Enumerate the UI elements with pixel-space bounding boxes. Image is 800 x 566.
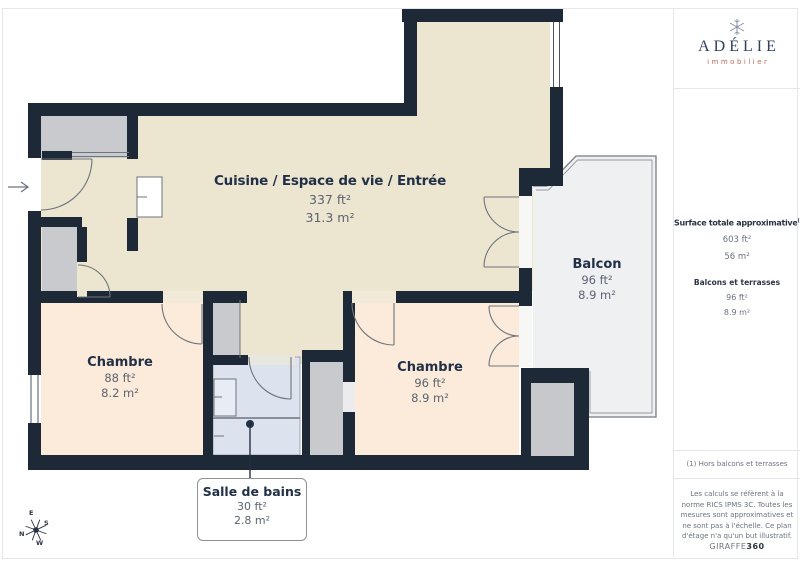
giraffe360-logo: GIRAFFE360 <box>674 542 800 551</box>
agency-subtitle: immobilier <box>674 58 800 66</box>
legal-section: Les calculs se réfèrent à la norme RICS … <box>674 478 800 558</box>
balcony-surface-m2: 8.9 m² <box>674 308 800 317</box>
footnote-section: (1) Hors balcons et terrasses <box>674 450 800 468</box>
room-area-ft: 96 ft² <box>547 273 647 288</box>
room-area-ft: 337 ft² <box>200 191 460 209</box>
disclaimer-text: Les calculs se réfèrent à la norme RICS … <box>680 489 794 542</box>
surface-summary: Surface totale approximative(1) 603 ft² … <box>674 218 800 317</box>
closet-left-mid <box>42 227 77 297</box>
room-area-m2: 8.9 m² <box>370 391 490 406</box>
footnote-text: (1) Hors balcons et terrasses <box>674 460 800 468</box>
room-label-bedroom2: Chambre 96 ft² 8.9 m² <box>370 359 490 406</box>
surface-total-title: Surface totale approximative(1) <box>674 218 800 228</box>
room-area-ft: 30 ft² <box>198 500 306 514</box>
room-area-m2: 31.3 m² <box>200 209 460 227</box>
surface-title-text: Surface totale approximative <box>674 219 797 228</box>
room-name: Balcon <box>547 256 647 273</box>
room-name: Cuisine / Espace de vie / Entrée <box>200 172 460 191</box>
window-bedroom1 <box>28 375 41 423</box>
compass-east-label: E <box>29 509 33 517</box>
room-name: Salle de bains <box>198 484 306 500</box>
entry-arrow-icon <box>8 182 28 192</box>
room-name: Chambre <box>370 359 490 376</box>
compass-south-label: S <box>44 519 49 527</box>
storage-interior <box>531 383 574 456</box>
surface-total-ft: 603 ft² <box>674 235 800 245</box>
room-area-ft: 96 ft² <box>370 376 490 391</box>
balcony-surface-ft: 96 ft² <box>674 293 800 302</box>
room-area-m2: 8.9 m² <box>547 288 647 303</box>
agency-logo: ADÉLIE immobilier <box>674 8 800 89</box>
room-label-balcony: Balcon 96 ft² 8.9 m² <box>547 256 647 303</box>
room-area-m2: 8.2 m² <box>60 386 180 401</box>
main-room-upper-floor <box>415 22 550 116</box>
compass-north-label: N <box>19 530 24 538</box>
room-label-main: Cuisine / Espace de vie / Entrée 337 ft²… <box>200 172 460 227</box>
surface-total-m2: 56 m² <box>674 252 800 262</box>
sidebar: ADÉLIE immobilier Surface totale approxi… <box>673 8 800 557</box>
giraffe-text: GIRAFFE <box>709 542 746 551</box>
snowflake-icon <box>728 18 746 36</box>
room-label-bedroom1: Chambre 88 ft² 8.2 m² <box>60 354 180 401</box>
room-area-ft: 88 ft² <box>60 371 180 386</box>
giraffe-360-text: 360 <box>746 542 764 551</box>
room-name: Chambre <box>60 354 180 371</box>
closet-bedroom2 <box>310 362 343 455</box>
bathroom-callout: Salle de bains 30 ft² 2.8 m² <box>197 478 307 541</box>
window-top-right <box>550 22 563 87</box>
agency-name: ADÉLIE <box>674 38 800 56</box>
room-area-m2: 2.8 m² <box>198 514 306 528</box>
page: Cuisine / Espace de vie / Entrée 337 ft²… <box>0 0 800 566</box>
balcony-surface-title: Balcons et terrasses <box>674 278 800 287</box>
closet-hall <box>212 300 240 358</box>
compass-west-label: W <box>36 539 43 547</box>
